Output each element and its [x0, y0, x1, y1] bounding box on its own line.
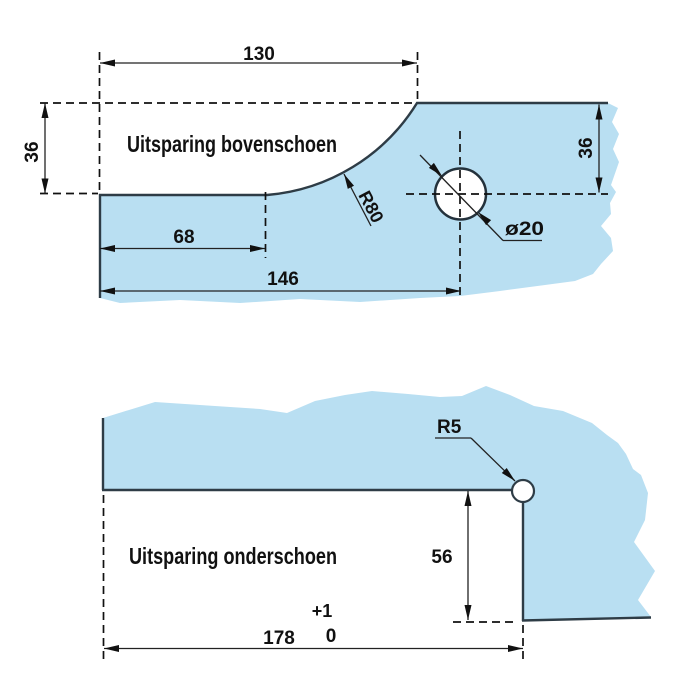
- svg-text:R5: R5: [437, 417, 462, 438]
- svg-text:178: 178: [263, 628, 295, 649]
- svg-text:56: 56: [431, 547, 452, 568]
- svg-text:130: 130: [243, 44, 275, 65]
- svg-text:146: 146: [267, 269, 299, 290]
- svg-text:ø20: ø20: [505, 219, 544, 240]
- svg-text:36: 36: [576, 137, 597, 158]
- svg-text:36: 36: [22, 141, 43, 162]
- svg-text:0: 0: [326, 626, 337, 647]
- svg-text:Uitsparing onderschoen: Uitsparing onderschoen: [129, 543, 337, 569]
- svg-text:Uitsparing bovenschoen: Uitsparing bovenschoen: [127, 131, 337, 157]
- svg-text:+1: +1: [312, 601, 333, 621]
- svg-text:68: 68: [173, 227, 194, 248]
